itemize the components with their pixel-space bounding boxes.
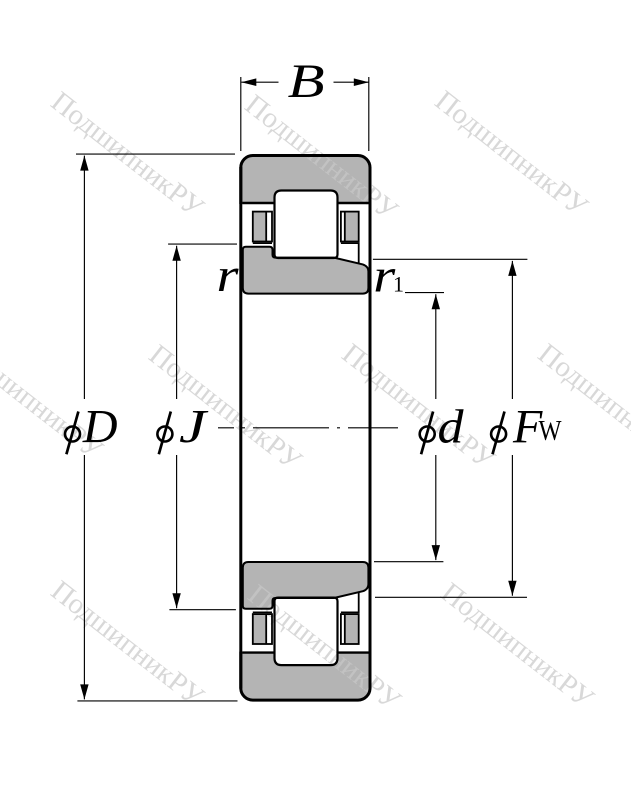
- svg-text:d: d: [438, 401, 465, 454]
- svg-text:ПодшипникРУ: ПодшипникРУ: [336, 337, 501, 476]
- svg-text:D: D: [82, 401, 118, 454]
- svg-text:ПодшипникРУ: ПодшипникРУ: [45, 85, 210, 224]
- svg-text:ПодшипникРУ: ПодшипникРУ: [143, 338, 308, 477]
- svg-text:ПодшипникРУ: ПодшипникРУ: [45, 574, 210, 713]
- svg-text:r: r: [217, 249, 239, 302]
- svg-text:ПодшипникРУ: ПодшипникРУ: [532, 337, 631, 476]
- svg-text:B: B: [288, 55, 325, 108]
- svg-text:J: J: [179, 401, 209, 454]
- svg-text:1: 1: [393, 272, 404, 297]
- svg-text:ПодшипникРУ: ПодшипникРУ: [429, 84, 594, 223]
- svg-text:W: W: [539, 415, 563, 447]
